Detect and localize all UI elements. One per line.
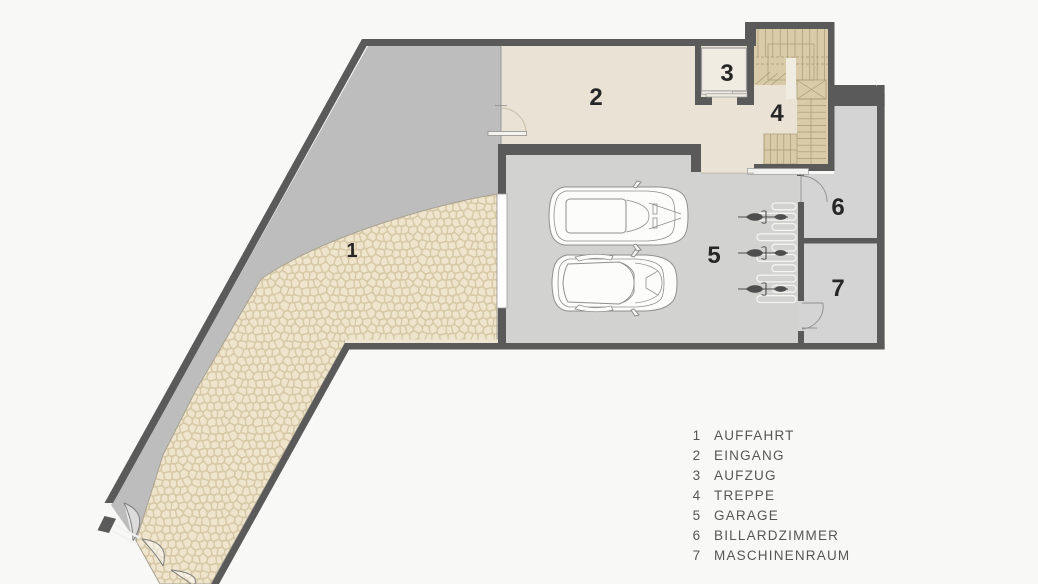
svg-text:MASCHINENRAUM: MASCHINENRAUM (714, 548, 850, 563)
svg-text:AUFZUG: AUFZUG (714, 468, 777, 483)
svg-text:BILLARDZIMMER: BILLARDZIMMER (714, 528, 839, 543)
svg-text:2: 2 (693, 448, 702, 463)
svg-text:AUFFAHRT: AUFFAHRT (714, 428, 795, 443)
svg-text:5: 5 (707, 242, 720, 269)
svg-text:4: 4 (693, 488, 702, 503)
svg-text:EINGANG: EINGANG (714, 448, 785, 463)
svg-text:GARAGE: GARAGE (714, 508, 779, 523)
svg-text:TREPPE: TREPPE (714, 488, 775, 503)
svg-text:7: 7 (831, 275, 844, 302)
svg-text:4: 4 (770, 100, 784, 127)
svg-text:1: 1 (693, 428, 702, 443)
svg-text:6: 6 (693, 528, 702, 543)
svg-text:7: 7 (693, 548, 702, 563)
svg-text:6: 6 (831, 194, 844, 221)
svg-text:1: 1 (346, 240, 357, 262)
svg-text:2: 2 (589, 84, 602, 111)
svg-text:5: 5 (693, 508, 702, 523)
svg-text:3: 3 (720, 60, 733, 87)
svg-text:3: 3 (693, 468, 702, 483)
